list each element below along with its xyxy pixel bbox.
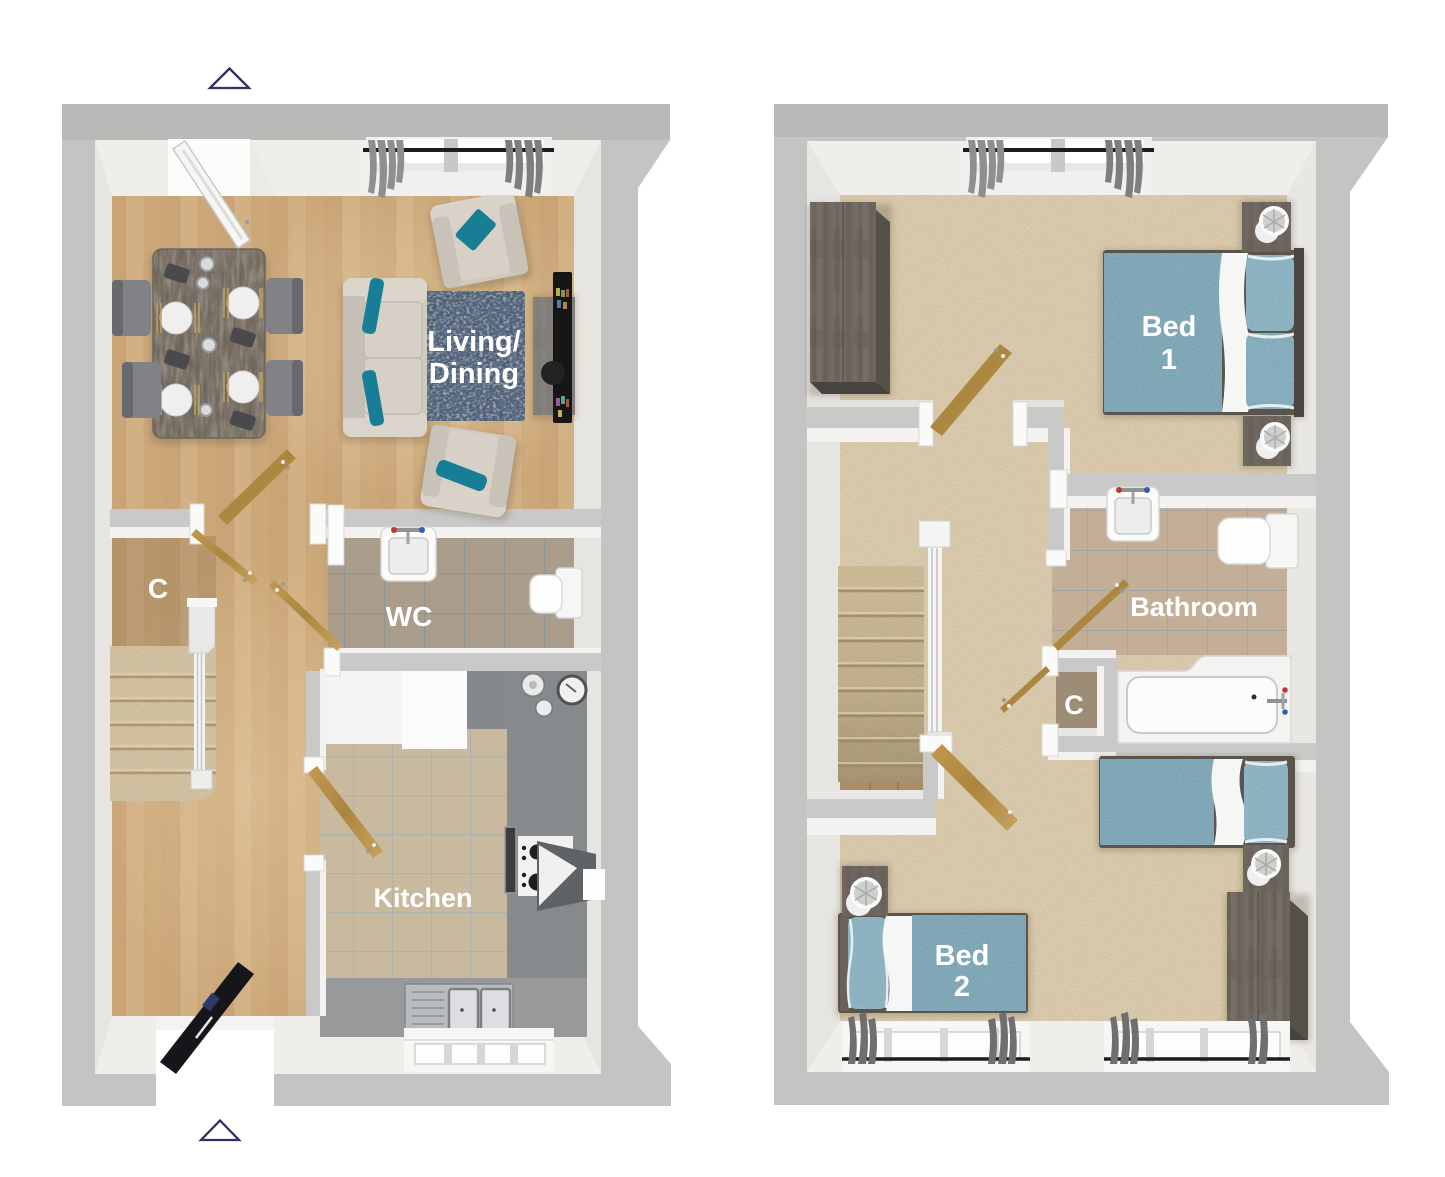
svg-text:Bed: Bed: [935, 940, 990, 972]
svg-text:1: 1: [1161, 344, 1177, 376]
svg-text:WC: WC: [386, 601, 433, 632]
svg-text:Dining: Dining: [429, 358, 519, 390]
svg-text:Bathroom: Bathroom: [1130, 592, 1258, 622]
svg-text:C: C: [1064, 690, 1084, 720]
svg-text:Living/: Living/: [427, 326, 520, 358]
svg-text:2: 2: [954, 971, 970, 1003]
svg-text:C: C: [148, 573, 168, 604]
svg-text:Bed: Bed: [1142, 311, 1197, 343]
svg-text:Kitchen: Kitchen: [373, 883, 472, 913]
